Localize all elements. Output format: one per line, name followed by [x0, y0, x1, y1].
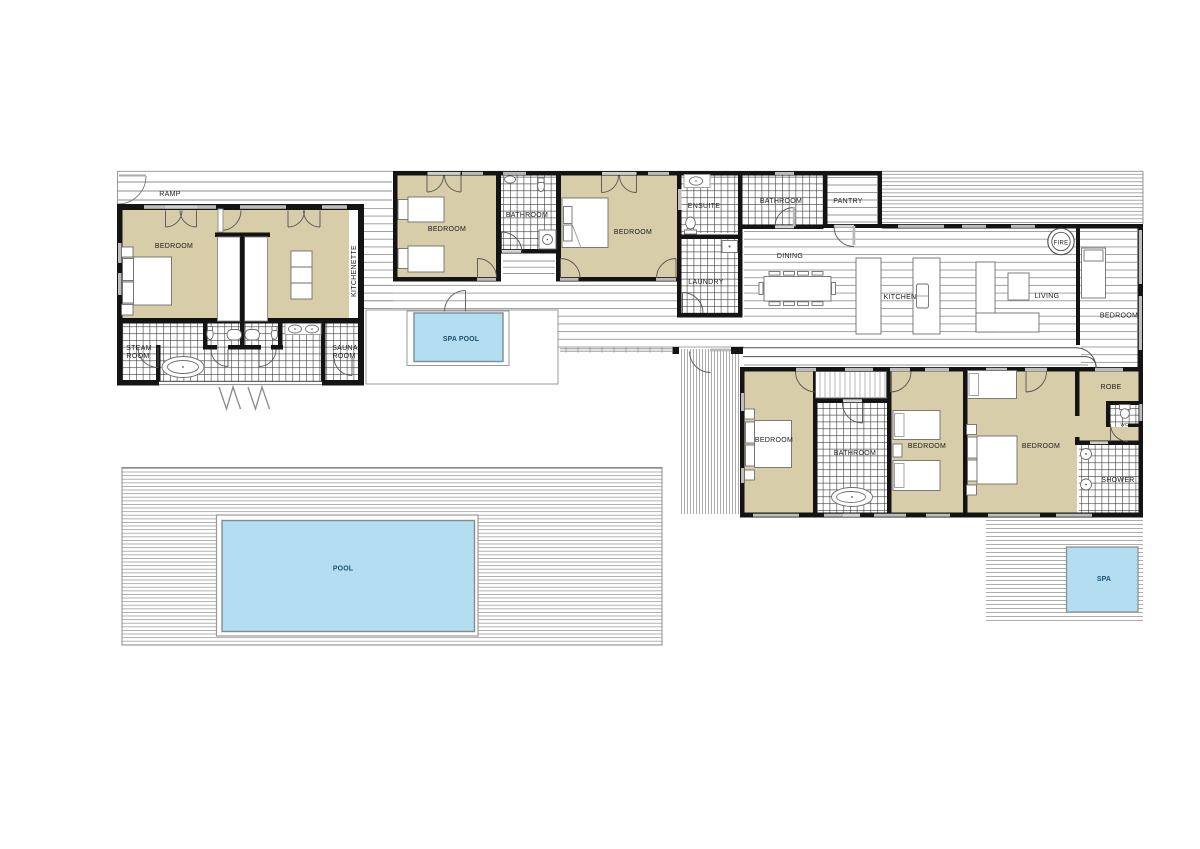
svg-text:BATHROOM: BATHROOM [834, 450, 876, 457]
svg-text:RAMP: RAMP [159, 191, 180, 198]
svg-text:LIVING: LIVING [1035, 293, 1060, 300]
svg-text:BEDROOM: BEDROOM [155, 243, 193, 250]
svg-text:BEDROOM: BEDROOM [755, 437, 793, 444]
svg-text:ROOM: ROOM [333, 353, 356, 360]
svg-text:BEDROOM: BEDROOM [614, 229, 652, 236]
svg-text:BEDROOM: BEDROOM [1100, 313, 1138, 320]
svg-text:WC: WC [1120, 422, 1129, 427]
svg-text:SAUNA: SAUNA [332, 345, 358, 352]
svg-text:LAUNDRY: LAUNDRY [688, 279, 723, 286]
svg-text:FIRE: FIRE [1054, 241, 1069, 247]
svg-text:KITCHEN: KITCHEN [884, 294, 917, 301]
svg-text:BEDROOM: BEDROOM [1022, 443, 1060, 450]
svg-text:POOL: POOL [333, 566, 354, 573]
svg-text:BATHROOM: BATHROOM [760, 198, 802, 205]
svg-text:SPA: SPA [1097, 576, 1111, 583]
svg-text:BEDROOM: BEDROOM [428, 226, 466, 233]
svg-text:STEAM: STEAM [126, 345, 152, 352]
svg-text:PANTRY: PANTRY [833, 198, 863, 205]
svg-text:KITCHENETTE: KITCHENETTE [351, 245, 358, 297]
svg-text:BATHROOM: BATHROOM [506, 212, 548, 219]
svg-text:ENSUITE: ENSUITE [688, 203, 720, 210]
svg-text:SHOWER: SHOWER [1101, 477, 1134, 484]
svg-text:SPA POOL: SPA POOL [443, 336, 480, 343]
svg-text:DINING: DINING [777, 253, 803, 260]
svg-text:ROOM: ROOM [127, 353, 150, 360]
svg-text:ROBE: ROBE [1100, 384, 1121, 391]
svg-text:BEDROOM: BEDROOM [908, 443, 946, 450]
